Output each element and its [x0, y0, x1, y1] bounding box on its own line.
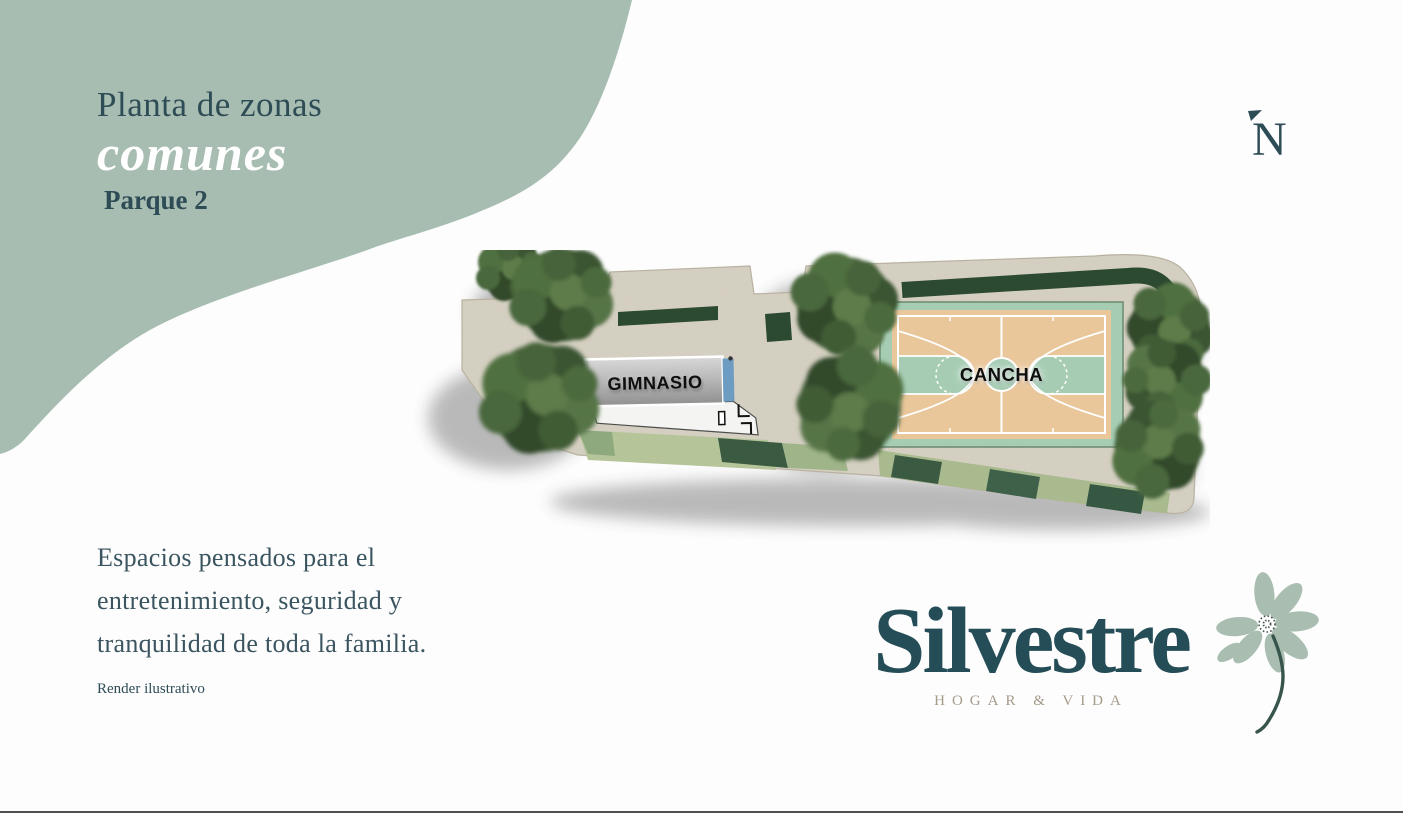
description-line: Espacios pensados para el [97, 536, 426, 579]
brand-tagline: HOGAR & VIDA [850, 693, 1212, 710]
brand-name: Silvestre [850, 598, 1212, 684]
flower-icon [1203, 572, 1323, 747]
brand-logo: Silvestre HOGAR & VIDA [850, 598, 1212, 710]
description-text: Espacios pensados para el entretenimient… [97, 536, 426, 665]
gym-label: GIMNASIO [607, 372, 702, 394]
description-line: tranquilidad de toda la familia. [97, 622, 426, 665]
render-disclaimer: Render ilustrativo [97, 681, 205, 698]
bottom-border [0, 811, 1403, 813]
court-label: CANCHA [960, 364, 1043, 385]
description-line: entretenimiento, seguridad y [97, 579, 426, 622]
page-subtitle: Parque 2 [97, 183, 322, 217]
brochure-slide: Planta de zonas comunes Parque 2 N [0, 0, 1403, 814]
page-title-accent: comunes [97, 126, 322, 180]
north-letter: N [1252, 113, 1287, 164]
page-title: Planta de zonas [97, 84, 322, 126]
title-block: Planta de zonas comunes Parque 2 [97, 84, 322, 217]
site-plan: GIMNASIO CANCHA [410, 250, 1210, 550]
north-indicator: N [1238, 100, 1298, 164]
